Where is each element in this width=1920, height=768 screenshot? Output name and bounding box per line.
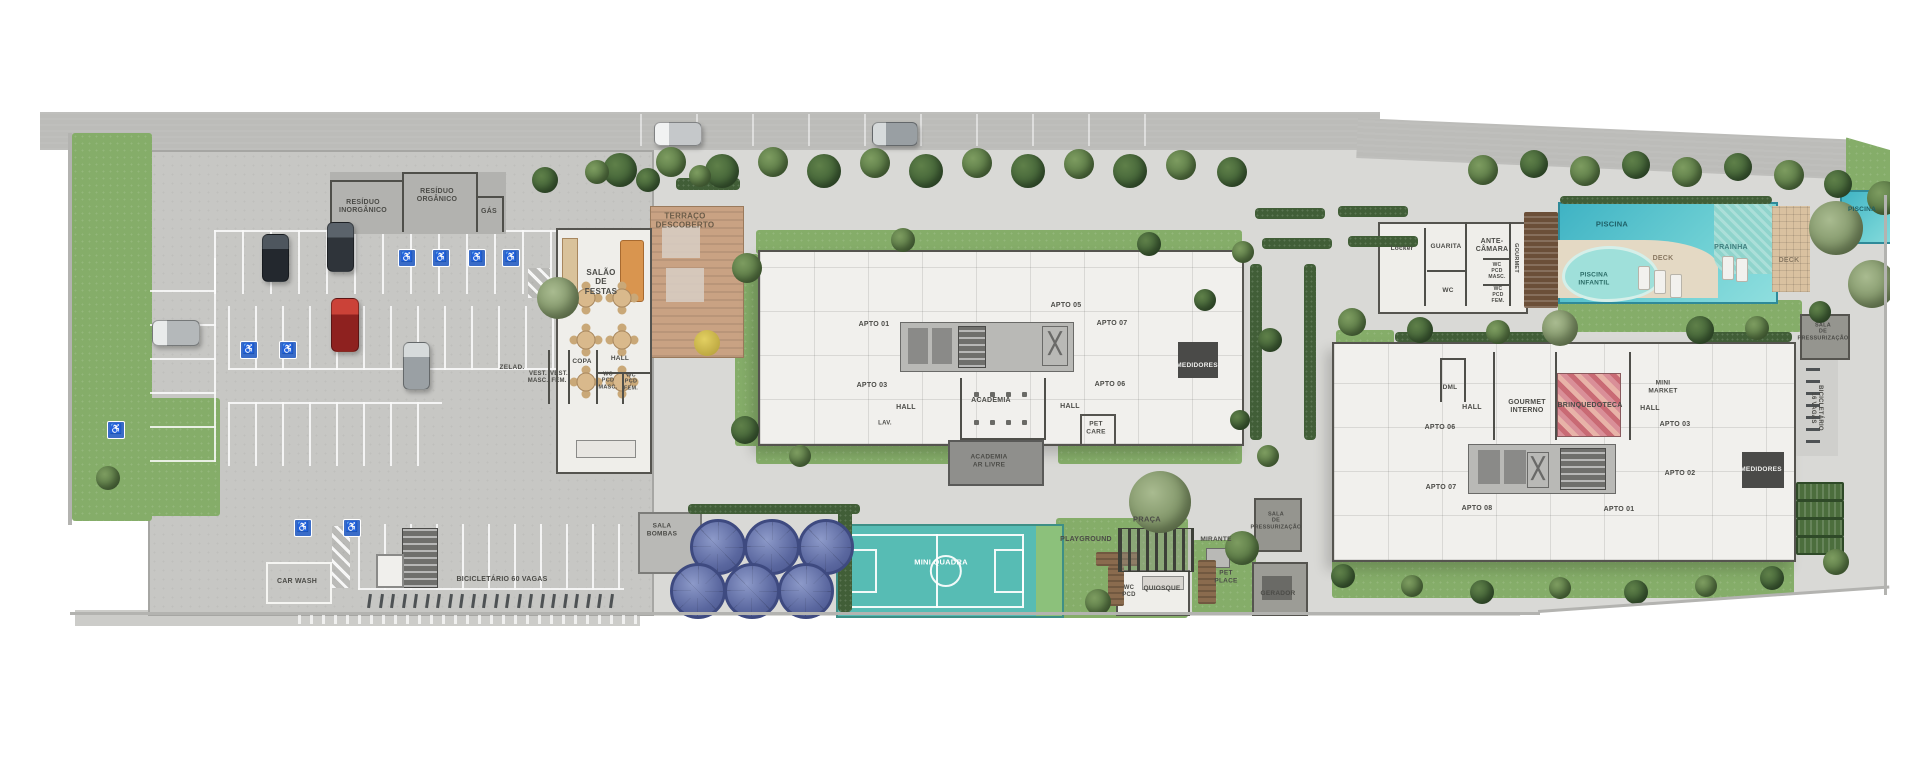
interior-wall (1629, 352, 1631, 440)
interior-wall (1440, 358, 1466, 360)
tree (1823, 549, 1849, 575)
area-label: WC PCD MASC. (599, 371, 618, 390)
hedge (1262, 238, 1332, 249)
area-label: MEDIDORES (1740, 466, 1782, 474)
area-label: WC PCD FEM. (1492, 287, 1505, 305)
tree (891, 228, 915, 252)
area-label: SALÃO DE FESTAS (585, 268, 617, 296)
interior-wall (330, 180, 404, 182)
tower-right-elevator-1 (1478, 450, 1500, 484)
parking-stalls (640, 114, 1200, 146)
area-label: APTO 05 (1051, 302, 1082, 310)
area-label: WC PCD MASC. (1488, 263, 1505, 281)
tree (1809, 301, 1831, 323)
area-label: LAV. (878, 420, 892, 427)
tower-center-shaft: ╳ (1042, 326, 1068, 366)
accessible-parking-icon: ♿ (279, 341, 297, 359)
area-label: APTO 01 (859, 321, 890, 329)
tree (1695, 575, 1717, 597)
tree (656, 147, 686, 177)
tree (1258, 328, 1282, 352)
bike-rack (1806, 440, 1820, 443)
area-label: APTO 08 (1462, 505, 1493, 513)
pool-lounger (1736, 258, 1748, 282)
area-label: RESÍDUO INORGÂNICO (339, 199, 387, 216)
area-label: WC (1442, 287, 1453, 295)
interior-wall (478, 196, 504, 198)
party-table (613, 331, 632, 350)
garage-elevator (376, 554, 404, 588)
hedge (1304, 264, 1316, 440)
tree (1064, 149, 1094, 179)
area-label: HALL (611, 355, 629, 363)
hedge (1560, 196, 1772, 204)
area-label: GOURMET INTERNO (1508, 399, 1546, 416)
area-label: PISCINA (1848, 206, 1876, 214)
tree (789, 445, 811, 467)
tree (1848, 260, 1896, 308)
car (331, 298, 359, 352)
tower-center-stairs (958, 326, 986, 368)
accessible-parking-icon: ♿ (468, 249, 486, 267)
tree (1338, 308, 1366, 336)
tree (1468, 155, 1498, 185)
tree (1549, 577, 1571, 599)
area-label: ZELAD. (500, 364, 525, 372)
area-label: VEST. FEM. (550, 371, 568, 385)
gym-equipment (990, 420, 995, 425)
hedge (1250, 264, 1262, 440)
area-label: PRAINHA (1714, 244, 1748, 252)
wall-left (68, 133, 72, 525)
tree (585, 160, 609, 184)
area-label: MINI MARKET (1648, 379, 1677, 394)
area-label: APTO 07 (1426, 484, 1457, 492)
interior-wall (1465, 222, 1467, 306)
gym-equipment (1022, 392, 1027, 397)
car (872, 122, 918, 146)
car (262, 234, 289, 282)
interior-wall (1440, 358, 1442, 402)
tree (532, 167, 558, 193)
accessible-parking-icon: ♿ (294, 519, 312, 537)
pool-pergola (1524, 212, 1558, 308)
tree (1137, 232, 1161, 256)
tower-right-elevator-2 (1504, 450, 1526, 484)
area-label: GÁS (481, 208, 497, 216)
area-label: Locker (1391, 245, 1414, 253)
interior-wall (1555, 352, 1557, 440)
pet-place-steps (1198, 560, 1216, 604)
tree (1166, 150, 1196, 180)
gym-equipment (974, 420, 979, 425)
parking-stalls (150, 258, 216, 462)
tree (1542, 310, 1578, 346)
tree (1113, 154, 1147, 188)
tower-center-elevator-2 (932, 328, 952, 364)
pool-lounger (1638, 266, 1650, 290)
interior-wall (1424, 228, 1426, 306)
area-label: SALA BOMBAS (647, 522, 677, 537)
area-label: MINI QUADRA (914, 559, 968, 568)
area-label: APTO 07 (1097, 320, 1128, 328)
gym-equipment (1006, 420, 1011, 425)
area-label: PET CARE (1086, 420, 1105, 435)
area-label: VEST. MASC. (528, 371, 549, 385)
tree (1520, 150, 1548, 178)
area-label: WC PCD (1122, 585, 1135, 599)
tree (1257, 445, 1279, 467)
area-label: HALL (1640, 405, 1660, 413)
garden-bed (1796, 482, 1844, 501)
party-table (577, 373, 596, 392)
area-label: SALA DE PRESSURIZAÇÃO (1798, 322, 1849, 341)
area-label: MEDIDORES (1176, 362, 1218, 370)
area-label: GUARITA (1431, 243, 1462, 251)
tree (758, 147, 788, 177)
interior-wall (568, 350, 570, 404)
car (654, 122, 702, 146)
area-label: GOURMET (1513, 243, 1519, 273)
tree (689, 165, 711, 187)
tree (1230, 410, 1250, 430)
site-plan: ╳ ╳ ♿♿♿♿♿♿♿♿♿RESÍDUO INORGÂNICOR (0, 0, 1920, 768)
tree (1407, 317, 1433, 343)
praca-pergola (1118, 528, 1194, 572)
garden-bed (1796, 500, 1844, 519)
tree (1486, 320, 1510, 344)
tower-right-shaft: ╳ (1527, 452, 1549, 488)
tree (1331, 564, 1355, 588)
pool-lounger (1670, 274, 1682, 298)
area-label: CAR WASH (277, 578, 317, 586)
tree (962, 148, 992, 178)
area-label: PISCINA INFANTIL (1578, 271, 1609, 286)
wall-right (1884, 195, 1887, 595)
accessible-parking-icon: ♿ (432, 249, 450, 267)
garden-bed (1796, 518, 1844, 537)
area-label: COPA (572, 358, 591, 366)
area-label: APTO 03 (1660, 421, 1691, 429)
pool-lounger (1722, 256, 1734, 280)
area-label: APTO 03 (857, 382, 888, 390)
water-tank (670, 563, 726, 619)
tree (1672, 157, 1702, 187)
interior-wall (1427, 270, 1467, 272)
tree (1686, 316, 1714, 344)
area-label: ACADEMIA (971, 397, 1011, 405)
area-label: GERADOR (1261, 590, 1296, 598)
brick-deck (1772, 206, 1810, 292)
car (327, 222, 354, 272)
interior-wall (476, 172, 478, 232)
tree (1570, 156, 1600, 186)
party-table (577, 331, 596, 350)
interior-wall (960, 438, 1046, 440)
pool-lounger (1654, 270, 1666, 294)
bike-rack (1806, 380, 1820, 383)
interior-wall (502, 196, 504, 232)
area-label: PISCINA (1596, 221, 1628, 230)
parking-stalls (228, 306, 556, 370)
tower-right-stairs (1560, 448, 1606, 490)
tree (1624, 580, 1648, 604)
interior-wall (960, 378, 962, 440)
edge-cut-right (1890, 100, 1920, 660)
tower-center-meters (1178, 342, 1218, 378)
area-label: APTO 02 (1665, 470, 1696, 478)
water-tank (778, 563, 834, 619)
area-label: MIRANTE (1200, 536, 1231, 544)
tree (636, 168, 660, 192)
bike-rack (1806, 368, 1820, 371)
accessible-parking-icon: ♿ (502, 249, 520, 267)
interior-wall (1483, 258, 1511, 260)
gym-equipment (1022, 420, 1027, 425)
tree (732, 253, 762, 283)
area-label: DECK (1779, 257, 1800, 265)
tree (96, 466, 120, 490)
area-label: BICICLETÁRIO 60 VAGAS (456, 576, 547, 584)
tree (1232, 241, 1254, 263)
area-label: BRINQUEDOTECA (1557, 402, 1622, 410)
tree (1760, 566, 1784, 590)
tree (1745, 316, 1769, 340)
tree (1401, 575, 1423, 597)
hedge (688, 504, 860, 514)
interior-wall (1044, 378, 1046, 440)
interior-wall (1509, 222, 1511, 306)
accessible-parking-icon: ♿ (398, 249, 416, 267)
tree (807, 154, 841, 188)
interior-wall (1464, 358, 1466, 402)
area-label: PLAYGROUND (1060, 536, 1112, 544)
area-label: WC PCD FEM. (624, 372, 638, 391)
court-key-right (994, 549, 1024, 593)
area-label: DML (1443, 384, 1458, 392)
hedge (1338, 206, 1408, 217)
terrace-pergola-1 (662, 226, 700, 258)
tree (1824, 170, 1852, 198)
tree (860, 148, 890, 178)
area-label: TERRAÇO DESCOBERTO (656, 212, 715, 231)
area-label: HALL (1462, 404, 1482, 412)
interior-wall (402, 172, 478, 174)
area-label: DECK (1653, 255, 1674, 263)
area-label: RESÍDUO ORGÂNICO (417, 188, 458, 205)
hedge (1255, 208, 1325, 219)
car (403, 342, 430, 390)
accessible-parking-icon: ♿ (240, 341, 258, 359)
party-room-counter (576, 440, 636, 458)
tree (1217, 157, 1247, 187)
area-label: ACADEMIA AR LIVRE (970, 453, 1007, 468)
tree (537, 277, 579, 319)
tree (1724, 153, 1752, 181)
tree (1774, 160, 1804, 190)
terrace-pergola-2 (666, 268, 704, 302)
wall-bottom (70, 612, 1540, 615)
yellow-shrub (694, 330, 720, 356)
tower-center-elevator-1 (908, 328, 928, 364)
court-apron (1036, 526, 1062, 616)
area-label: SALA DE PRESSURIZAÇÃO (1251, 511, 1302, 530)
water-tank (724, 563, 780, 619)
area-label: HALL (896, 404, 916, 412)
garage-stairs (402, 528, 438, 588)
area-label: QUIOSQUE (1143, 585, 1180, 593)
area-label: BICICLETÁRIO 16 VAGAS (1809, 385, 1823, 431)
sports-court (836, 524, 1064, 618)
car (152, 320, 200, 346)
accessible-parking-icon: ♿ (107, 421, 125, 439)
area-label: PRAÇA (1133, 516, 1161, 525)
tree (1470, 580, 1494, 604)
parking-stalls (228, 402, 442, 466)
area-label: ANTE- CÂMARA (1476, 238, 1509, 255)
area-label: APTO 06 (1095, 381, 1126, 389)
area-label: HALL (1060, 403, 1080, 411)
tree (1622, 151, 1650, 179)
tree (731, 416, 759, 444)
area-label: PET PLACE (1214, 569, 1237, 584)
tree (909, 154, 943, 188)
tree (1011, 154, 1045, 188)
interior-wall (1493, 352, 1495, 440)
accessible-parking-icon: ♿ (343, 519, 361, 537)
tree (1194, 289, 1216, 311)
area-label: APTO 01 (1604, 506, 1635, 514)
area-label: APTO 06 (1425, 424, 1456, 432)
